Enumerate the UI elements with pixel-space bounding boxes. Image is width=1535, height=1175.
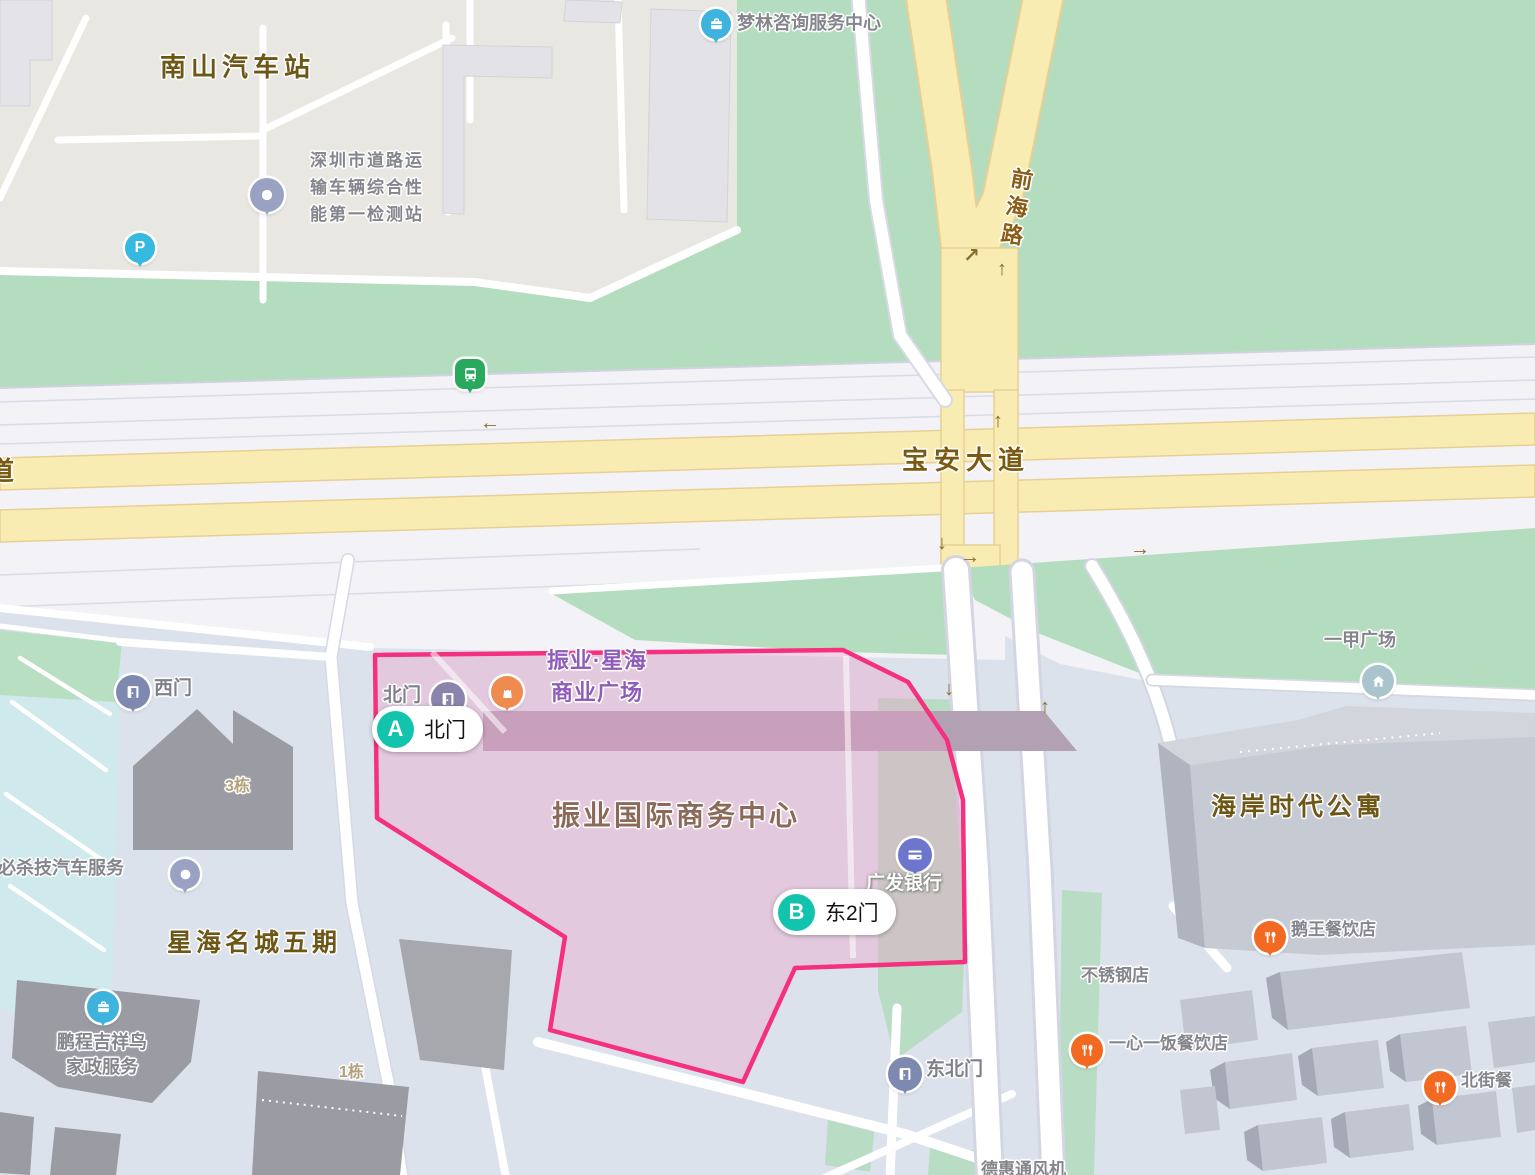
briefcase-icon	[95, 999, 112, 1016]
marker-b-east-gate-2[interactable]: B 东2门	[773, 889, 896, 935]
marker-a-label: 北门	[424, 714, 466, 744]
yixinyifan-restaurant-pin[interactable]	[1071, 1034, 1103, 1066]
menglin-briefcase-pin[interactable]	[701, 9, 731, 39]
pengcheng-briefcase-pin[interactable]	[87, 991, 119, 1023]
cutlery-icon	[1432, 1079, 1449, 1096]
cutlery-icon	[1079, 1042, 1096, 1059]
bank-card-icon	[906, 846, 924, 864]
map-canvas[interactable]: 南山汽车站 深圳市道路运 输车辆综合性 能第一检测站 梦林咨询服务中心 前海路 …	[0, 0, 1535, 1175]
parking-icon: P	[135, 239, 146, 257]
dot-icon	[177, 866, 194, 883]
bank-pin[interactable]	[898, 838, 932, 872]
west-gate-pin[interactable]	[116, 675, 150, 709]
marker-b-label: 东2门	[825, 897, 879, 927]
marker-a-badge: A	[377, 711, 414, 748]
ewang-restaurant-pin[interactable]	[1254, 921, 1286, 953]
shopping-plaza-pin[interactable]	[491, 676, 523, 708]
marker-a-north-gate[interactable]: A 北门	[372, 706, 483, 752]
bishaji-auto-pin[interactable]	[170, 859, 200, 889]
marker-b-badge: B	[778, 894, 815, 931]
yijia-plaza-house-pin[interactable]	[1362, 665, 1394, 697]
dot-icon	[258, 186, 276, 204]
briefcase-icon	[708, 16, 725, 33]
detection-station-pin[interactable]	[250, 178, 284, 212]
shopping-bag-icon	[499, 684, 516, 701]
cutlery-icon	[1262, 929, 1279, 946]
parking-pin[interactable]: P	[125, 233, 155, 263]
house-icon	[1370, 673, 1387, 690]
beijie-restaurant-pin[interactable]	[1424, 1071, 1456, 1103]
map-background	[0, 0, 1535, 1175]
zone-top	[0, 0, 1535, 388]
bus-stop-pin[interactable]	[455, 359, 485, 389]
bus-icon	[462, 366, 479, 383]
gate-icon	[896, 1065, 914, 1083]
northeast-gate-pin[interactable]	[888, 1057, 922, 1091]
gate-icon	[124, 683, 142, 701]
